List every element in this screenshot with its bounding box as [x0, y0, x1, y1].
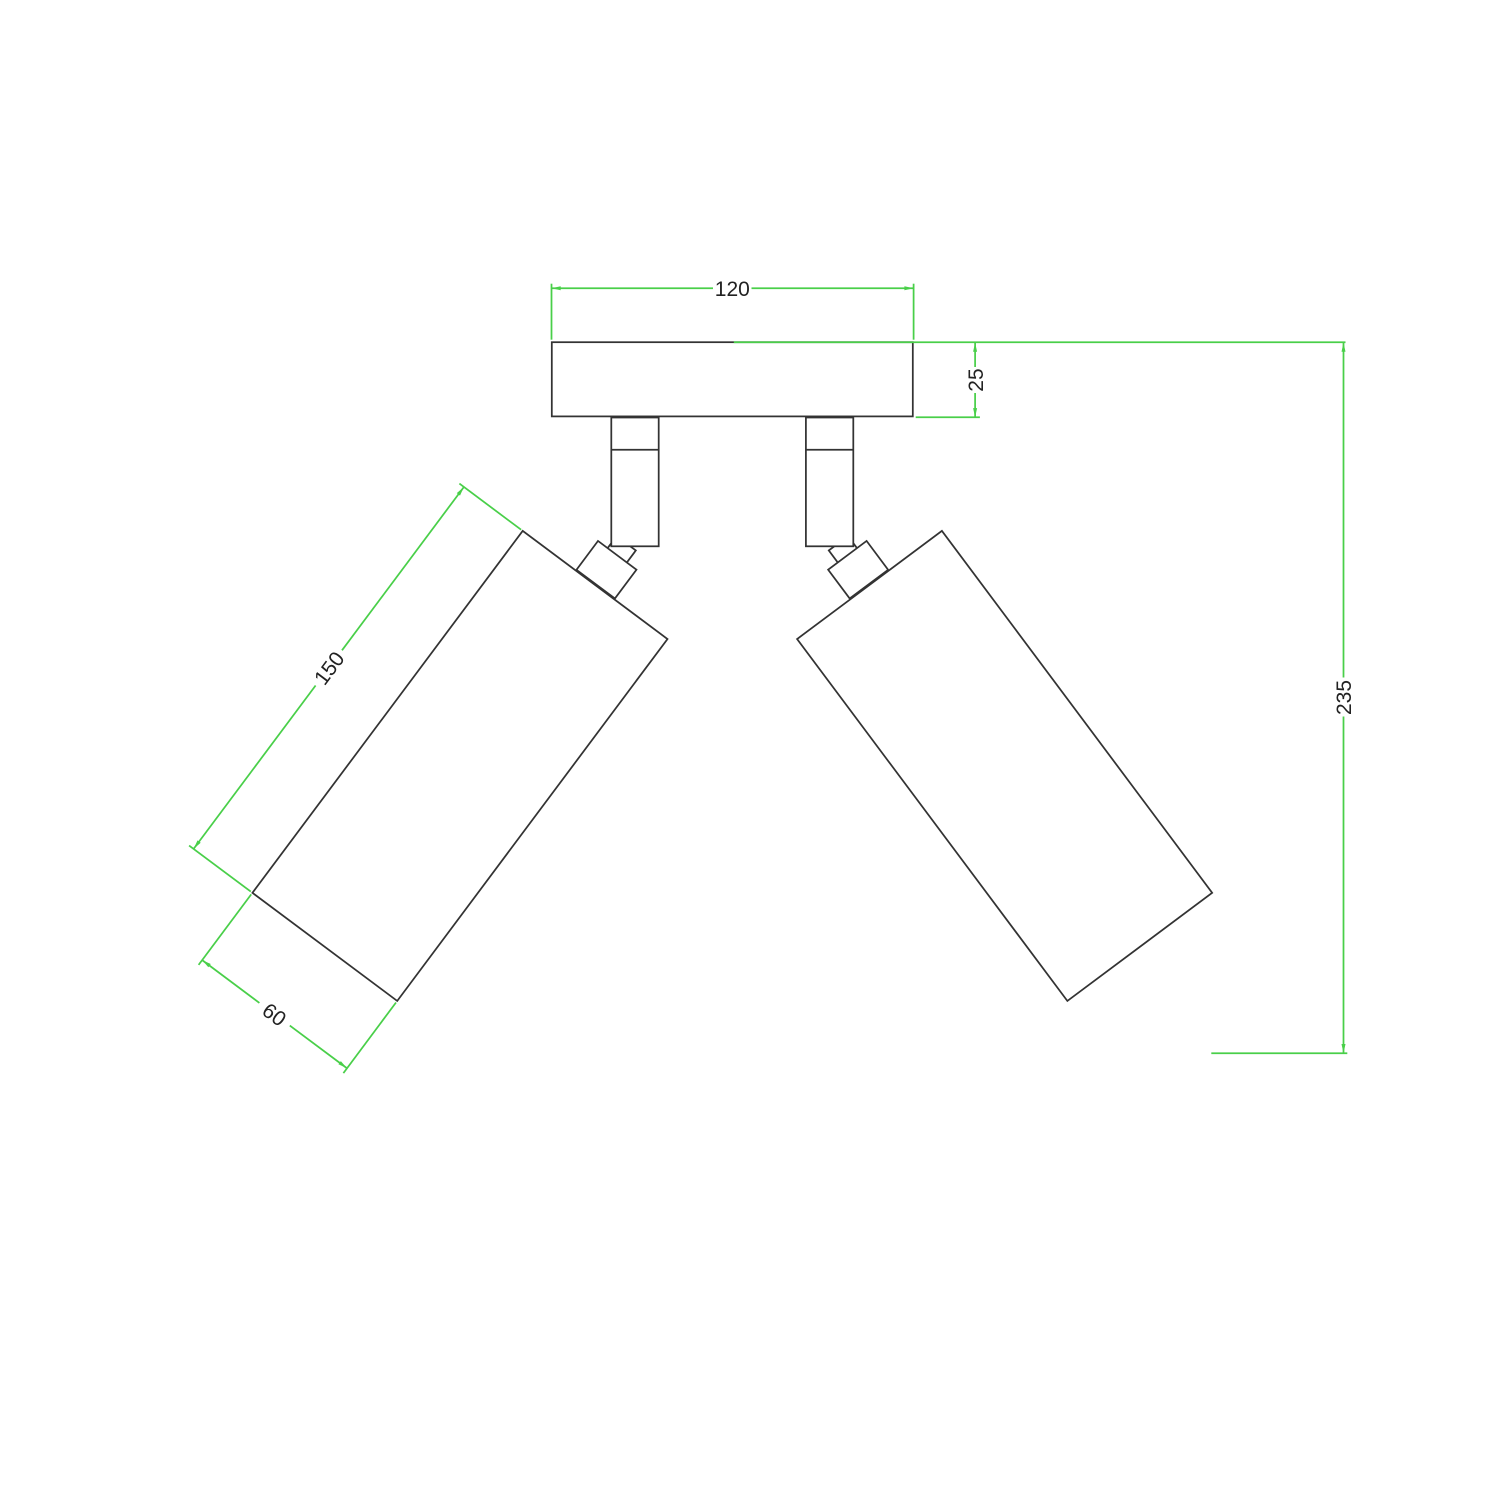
svg-text:25: 25 — [965, 368, 988, 391]
svg-text:235: 235 — [1333, 680, 1356, 715]
svg-text:120: 120 — [715, 278, 750, 301]
